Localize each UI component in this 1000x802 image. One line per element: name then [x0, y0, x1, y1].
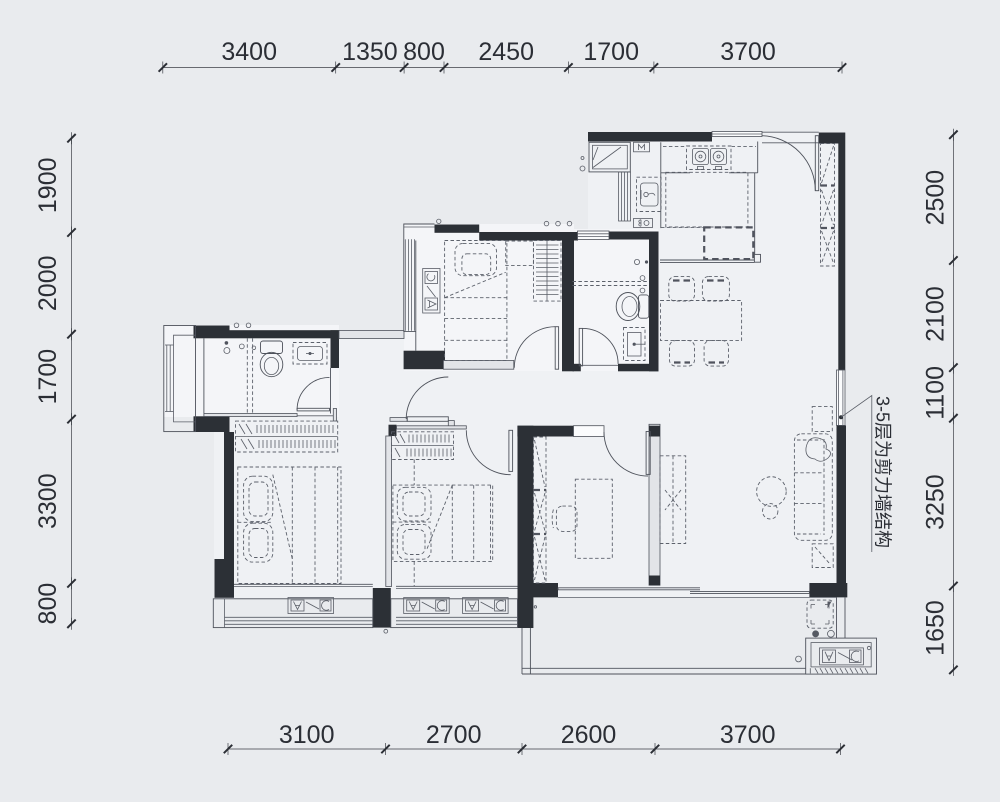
svg-text:3300: 3300 — [34, 473, 62, 529]
svg-text:2700: 2700 — [426, 721, 482, 749]
svg-text:1350: 1350 — [342, 38, 398, 66]
svg-text:3700: 3700 — [720, 721, 776, 749]
svg-text:1900: 1900 — [34, 157, 62, 213]
svg-text:3250: 3250 — [922, 474, 950, 530]
svg-text:3-5层为剪力墙结构: 3-5层为剪力墙结构 — [873, 396, 893, 548]
svg-text:2000: 2000 — [34, 255, 62, 311]
svg-text:3700: 3700 — [720, 38, 776, 66]
svg-text:1650: 1650 — [922, 600, 950, 656]
svg-text:2450: 2450 — [478, 38, 534, 66]
svg-text:1100: 1100 — [922, 366, 950, 420]
svg-text:3100: 3100 — [279, 721, 335, 749]
svg-text:3400: 3400 — [221, 38, 277, 66]
svg-text:1700: 1700 — [583, 38, 639, 66]
svg-text:1700: 1700 — [34, 349, 62, 405]
svg-text:2500: 2500 — [922, 170, 950, 226]
svg-text:800: 800 — [34, 583, 62, 625]
svg-text:2600: 2600 — [561, 721, 617, 749]
svg-text:2100: 2100 — [922, 286, 950, 342]
svg-text:800: 800 — [403, 38, 445, 66]
